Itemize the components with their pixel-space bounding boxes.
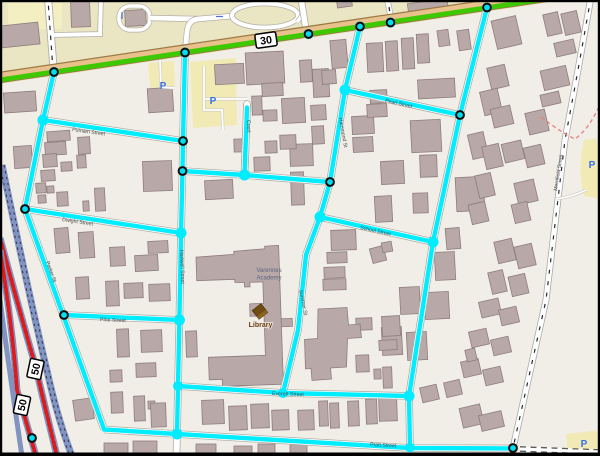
svg-text:P: P bbox=[589, 160, 596, 171]
svg-text:P: P bbox=[581, 439, 588, 450]
svg-text:P: P bbox=[210, 96, 217, 107]
svg-text:Pine Street: Pine Street bbox=[100, 317, 126, 324]
svg-text:Everett Street: Everett Street bbox=[272, 391, 304, 398]
svg-text:30: 30 bbox=[259, 34, 273, 48]
svg-text:Varennes: Varennes bbox=[256, 268, 281, 274]
svg-text:Library: Library bbox=[249, 322, 273, 329]
svg-text:Academy: Academy bbox=[256, 276, 281, 282]
svg-text:Court: Court bbox=[245, 120, 251, 133]
svg-text:P: P bbox=[160, 81, 167, 92]
svg-text:Hartwell Street: Hartwell Street bbox=[178, 250, 185, 285]
